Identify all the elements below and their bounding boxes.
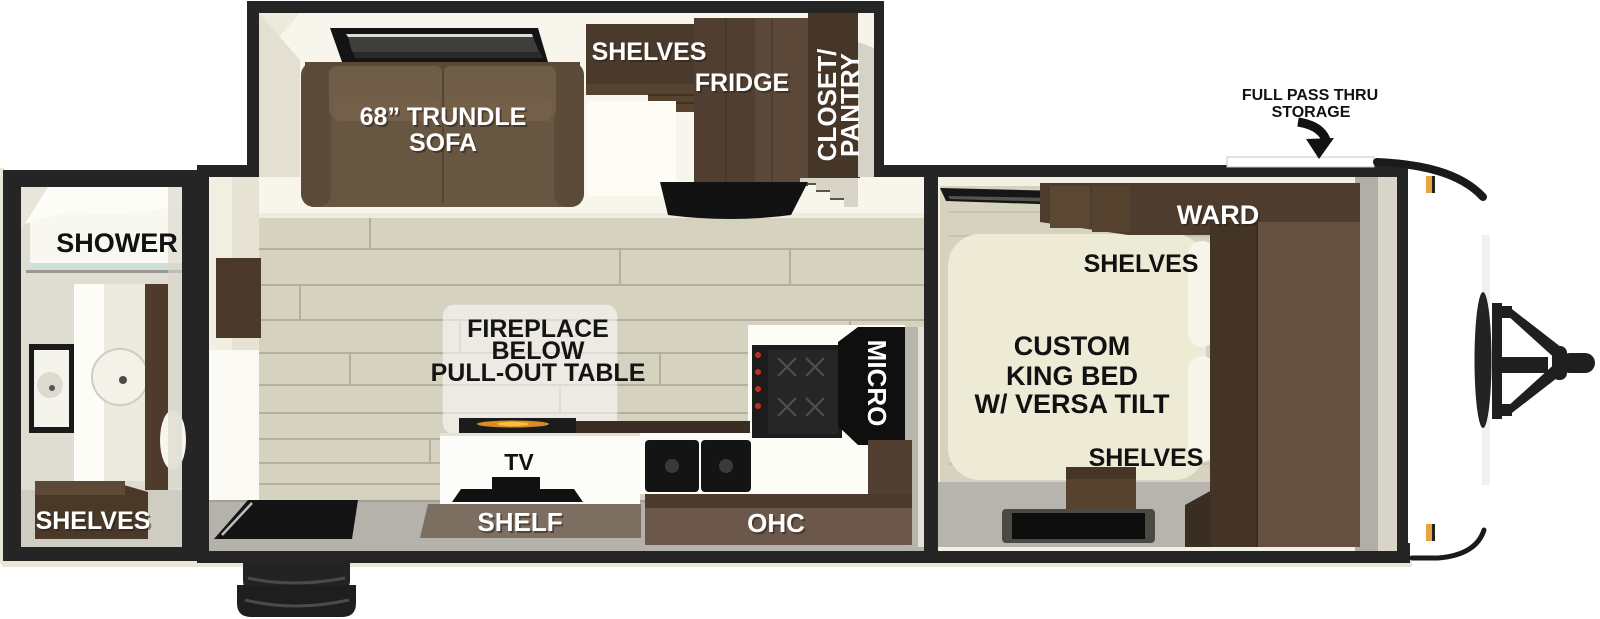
svg-text:WARD: WARD (1177, 200, 1260, 230)
svg-text:CLOSET/PANTRY: CLOSET/PANTRY (812, 49, 865, 162)
svg-text:SHELF: SHELF (477, 507, 562, 537)
svg-text:SHELVES: SHELVES (592, 38, 707, 66)
svg-text:68” TRUNDLE: 68” TRUNDLE (360, 103, 527, 131)
svg-text:FRIDGE: FRIDGE (695, 69, 789, 97)
svg-text:TV: TV (504, 449, 534, 475)
svg-text:PULL-OUT TABLE: PULL-OUT TABLE (431, 359, 646, 387)
svg-text:SHELVES: SHELVES (1084, 250, 1199, 278)
svg-text:KING BED: KING BED (1006, 361, 1138, 391)
svg-text:SHELVES: SHELVES (1089, 444, 1204, 472)
svg-text:SOFA: SOFA (409, 129, 477, 157)
svg-text:CUSTOM: CUSTOM (1014, 331, 1131, 361)
svg-text:STORAGE: STORAGE (1272, 104, 1351, 121)
svg-text:FULL PASS THRU: FULL PASS THRU (1242, 87, 1378, 104)
svg-text:MICRO: MICRO (862, 340, 892, 427)
svg-text:W/ VERSA TILT: W/ VERSA TILT (975, 389, 1170, 419)
svg-text:OHC: OHC (747, 508, 805, 538)
svg-text:SHELVES: SHELVES (36, 507, 151, 535)
svg-text:SHOWER: SHOWER (56, 228, 178, 258)
